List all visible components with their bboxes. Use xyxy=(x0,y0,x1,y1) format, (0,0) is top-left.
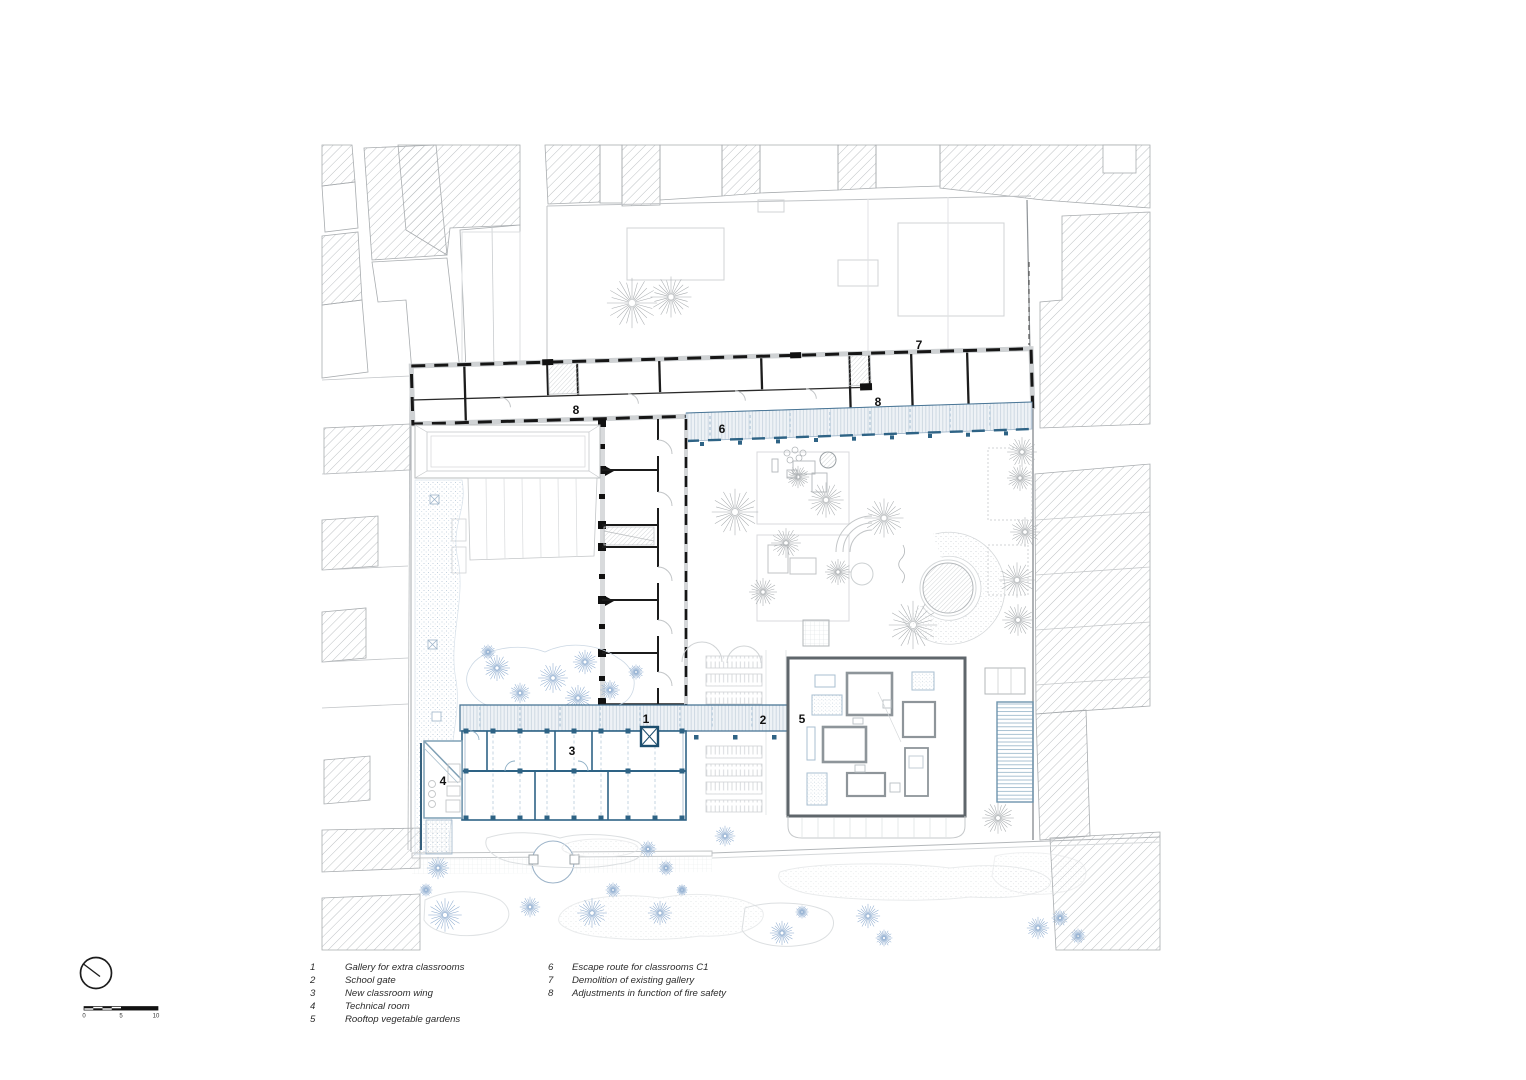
legend-item-3: 3New classroom wing xyxy=(310,988,464,1001)
plan-label-3: 3 xyxy=(569,744,576,758)
plan-label-2: 2 xyxy=(760,713,767,727)
scale-tick-0: 0 xyxy=(82,1014,86,1020)
rear-courtyard xyxy=(462,196,1031,368)
legend-column-2: 6Escape route for classrooms C1 7Demolit… xyxy=(548,962,726,1001)
scale-tick-5: 5 xyxy=(119,1014,123,1020)
legend-label: Technical room xyxy=(345,1001,410,1012)
plan-label-4: 4 xyxy=(440,774,447,788)
legend-num: 7 xyxy=(548,975,572,988)
site-plan-drawing: 1 2 3 4 5 6 7 8 8 0 5 10 xyxy=(0,0,1526,1080)
legend-item-5: 5Rooftop vegetable gardens xyxy=(310,1014,464,1027)
legend-item-7: 7Demolition of existing gallery xyxy=(548,975,726,988)
scale-tick-10: 10 xyxy=(153,1014,160,1020)
rooftop-gardens-building xyxy=(788,658,1033,838)
new-classroom-wing xyxy=(462,727,686,821)
legend-item-1: 1Gallery for extra classrooms xyxy=(310,962,464,975)
legend-num: 5 xyxy=(310,1014,345,1027)
legend-num: 8 xyxy=(548,988,572,1001)
legend-column-1: 1Gallery for extra classrooms 2School ga… xyxy=(310,962,464,1027)
vegetable-beds xyxy=(706,650,786,815)
legend-item-8: 8Adjustments in function of fire safety xyxy=(548,988,726,1001)
plan-label-6: 6 xyxy=(719,422,726,436)
street-landscape xyxy=(419,826,1086,947)
legend-label: Adjustments in function of fire safety xyxy=(572,988,726,999)
technical-room xyxy=(421,741,462,854)
legend-label: Rooftop vegetable gardens xyxy=(345,1014,460,1025)
legend-num: 6 xyxy=(548,962,572,975)
playground xyxy=(682,437,1040,663)
legend-item-4: 4Technical room xyxy=(310,1001,464,1014)
legend-num: 1 xyxy=(310,962,345,975)
legend-num: 2 xyxy=(310,975,345,988)
plan-label-8b: 8 xyxy=(875,395,882,409)
legend-label: New classroom wing xyxy=(345,988,433,999)
classroom-wing-c xyxy=(598,419,686,706)
site-plan-page: { "plan": { "marks": { "m1": "1", "m2": … xyxy=(0,0,1526,1080)
legend-item-2: 2School gate xyxy=(310,975,464,988)
legend-num: 4 xyxy=(310,1001,345,1014)
plan-label-8a: 8 xyxy=(573,403,580,417)
plan-label-1: 1 xyxy=(643,712,650,726)
plan-label-5: 5 xyxy=(799,712,806,726)
legend-label: Escape route for classrooms C1 xyxy=(572,962,709,973)
legend-label: School gate xyxy=(345,975,396,986)
plan-label-7: 7 xyxy=(916,338,923,352)
legend-label: Gallery for extra classrooms xyxy=(345,962,464,973)
scale-bar: 0 5 10 xyxy=(82,1007,160,1020)
legend-item-6: 6Escape route for classrooms C1 xyxy=(548,962,726,975)
north-indicator xyxy=(81,958,112,989)
legend-num: 3 xyxy=(310,988,345,1001)
exterior-stairs xyxy=(997,702,1033,802)
legend-label: Demolition of existing gallery xyxy=(572,975,694,986)
